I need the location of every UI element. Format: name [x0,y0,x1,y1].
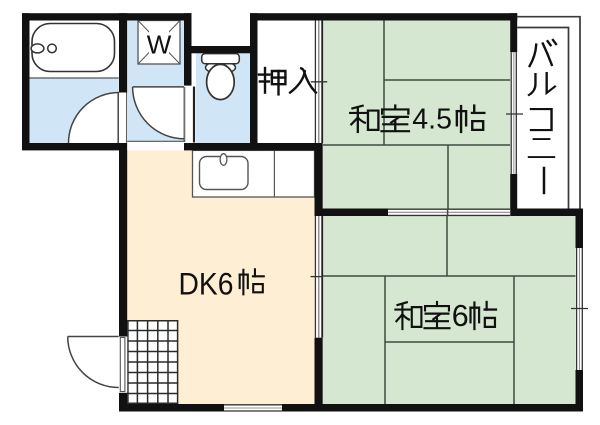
svg-text:DK6: DK6 [179,265,234,301]
svg-text:W: W [147,30,172,60]
svg-text:6: 6 [452,299,469,333]
svg-text:4.5: 4.5 [412,104,452,136]
